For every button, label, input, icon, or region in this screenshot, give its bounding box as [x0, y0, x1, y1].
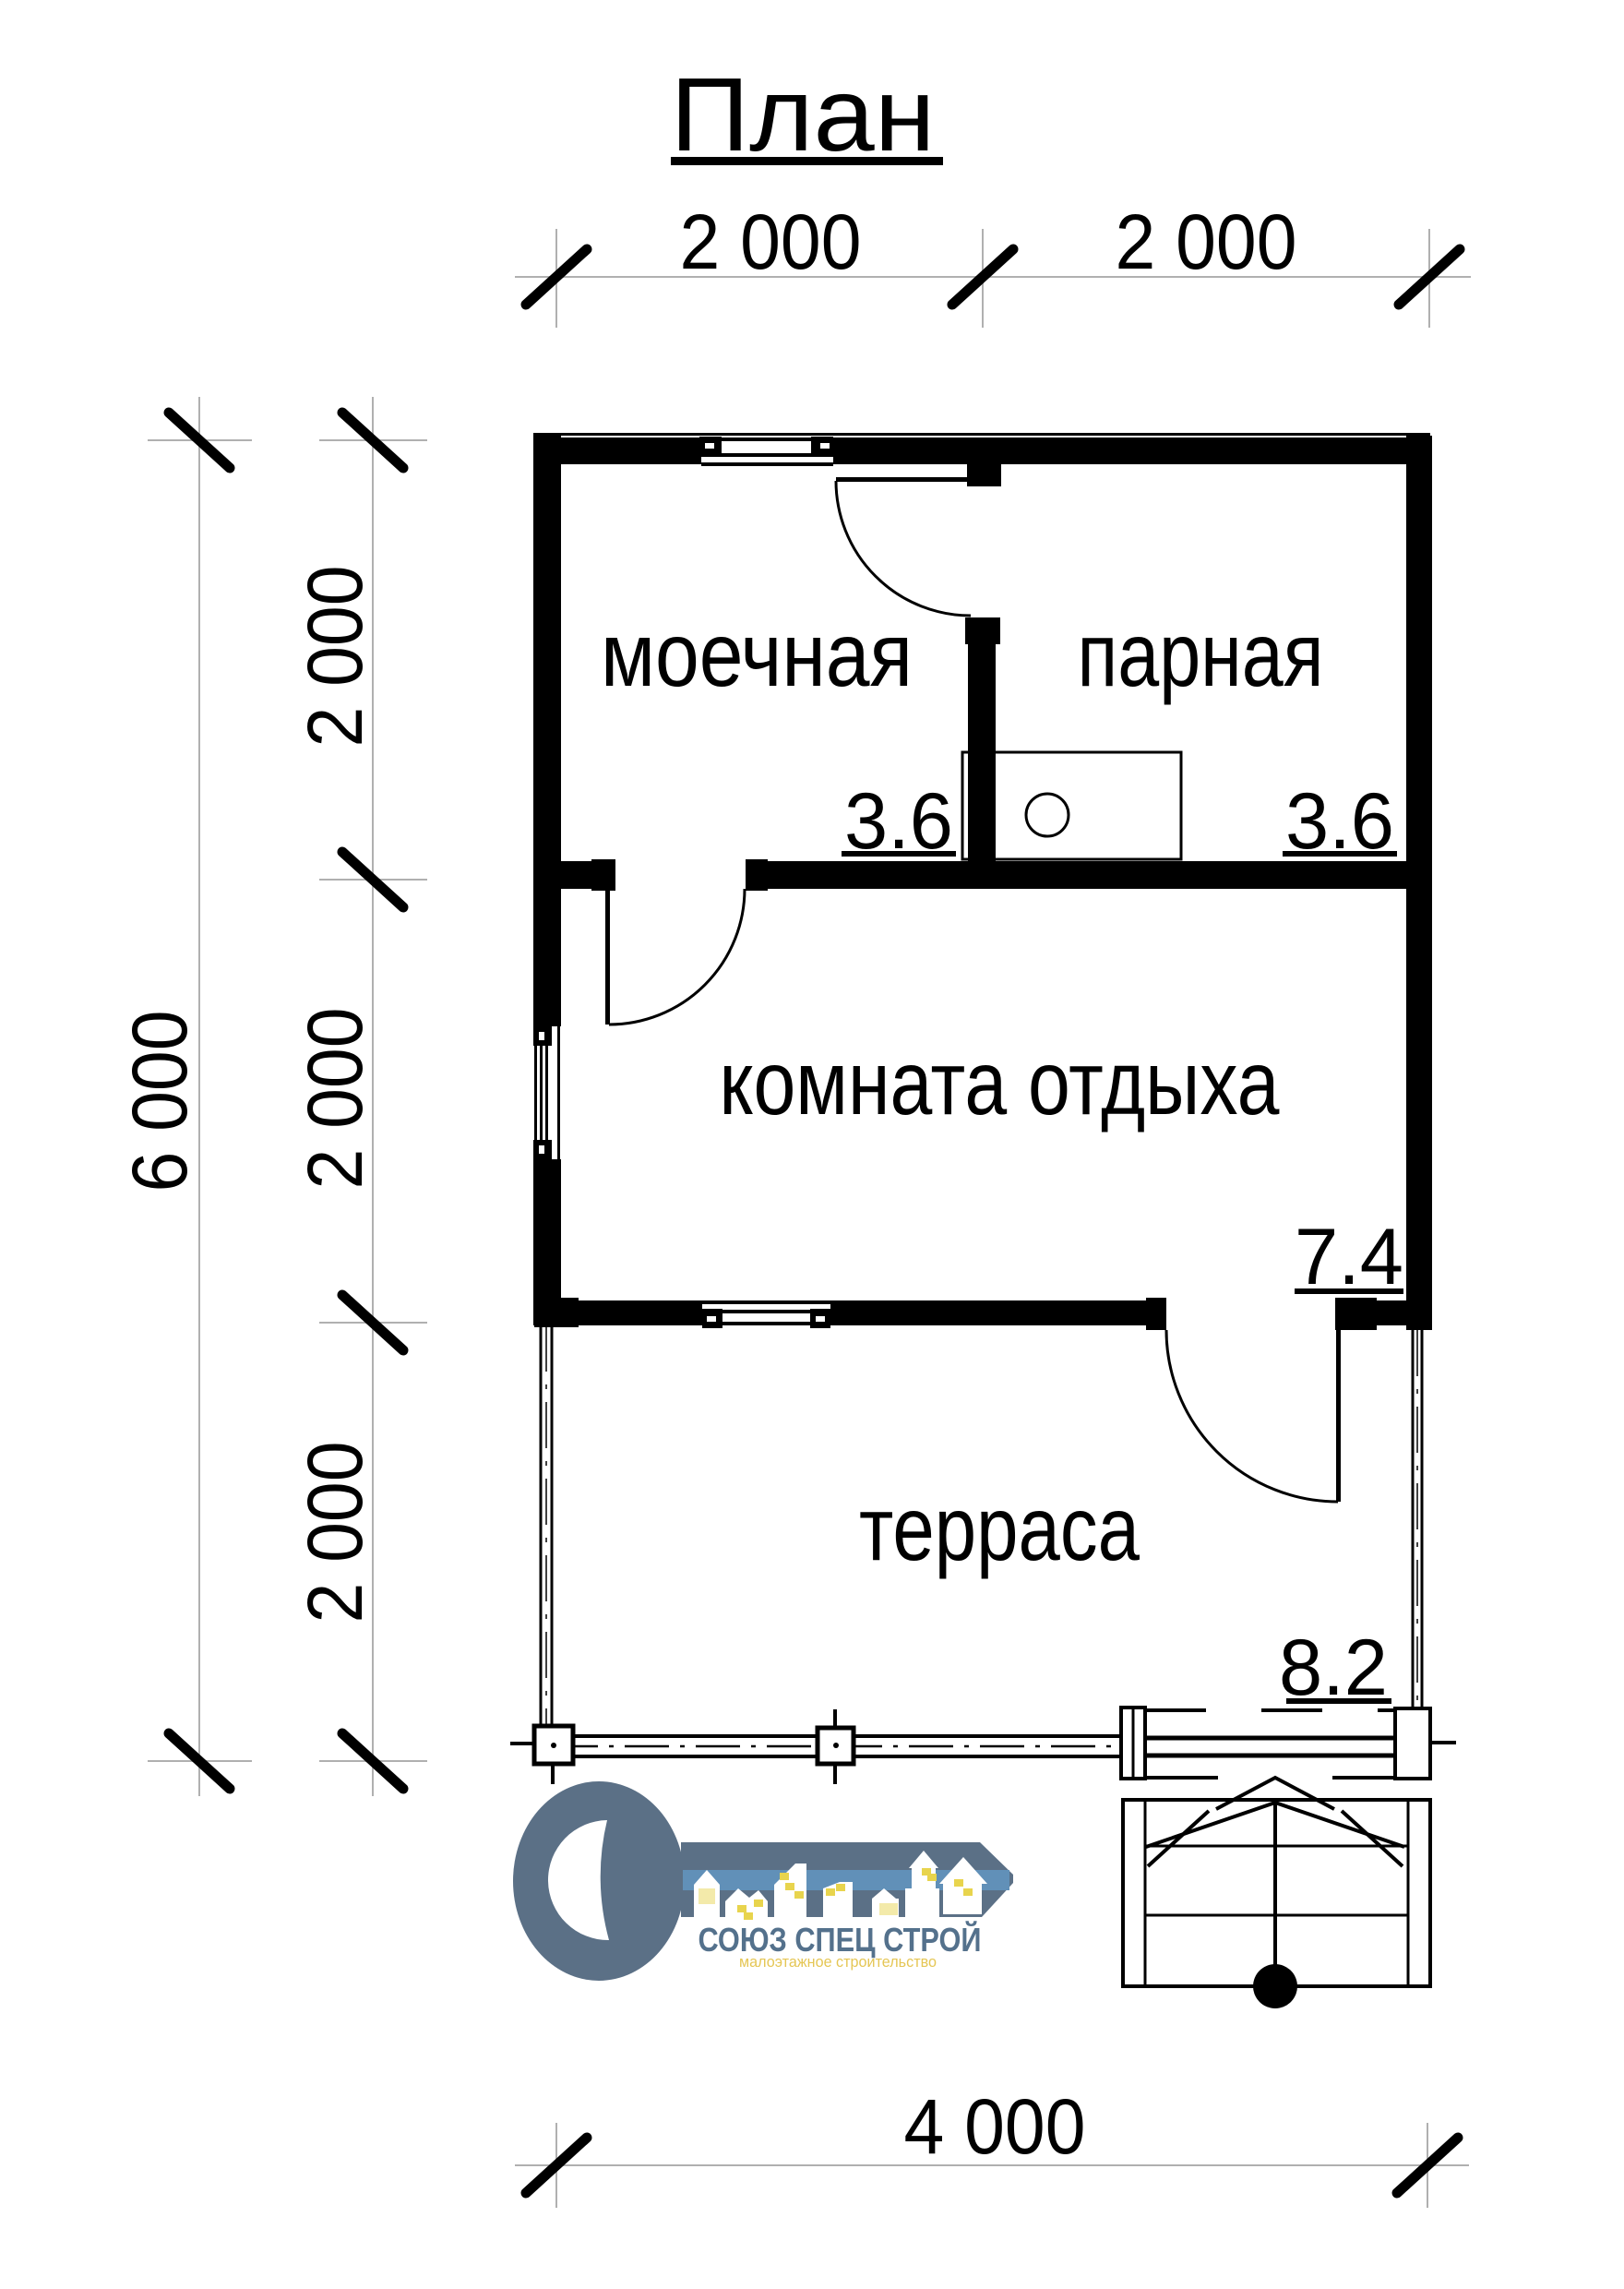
svg-text:2 000: 2 000 [680, 198, 862, 285]
svg-text:малоэтажное строительство: малоэтажное строительство [739, 1953, 937, 1971]
svg-text:2 000: 2 000 [1116, 198, 1297, 285]
svg-text:6 000: 6 000 [116, 1011, 203, 1192]
svg-text:парная: парная [1078, 604, 1324, 705]
svg-text:2 000: 2 000 [292, 1008, 378, 1190]
svg-text:2 000: 2 000 [292, 566, 378, 748]
svg-text:моечная: моечная [601, 604, 913, 705]
svg-text:План: План [671, 56, 936, 173]
svg-text:4 000: 4 000 [904, 2083, 1086, 2170]
svg-text:терраса: терраса [859, 1478, 1140, 1579]
svg-text:7.4: 7.4 [1295, 1213, 1403, 1301]
svg-text:2 000: 2 000 [292, 1442, 378, 1624]
svg-text:комната отдыха: комната отдыха [720, 1032, 1280, 1133]
